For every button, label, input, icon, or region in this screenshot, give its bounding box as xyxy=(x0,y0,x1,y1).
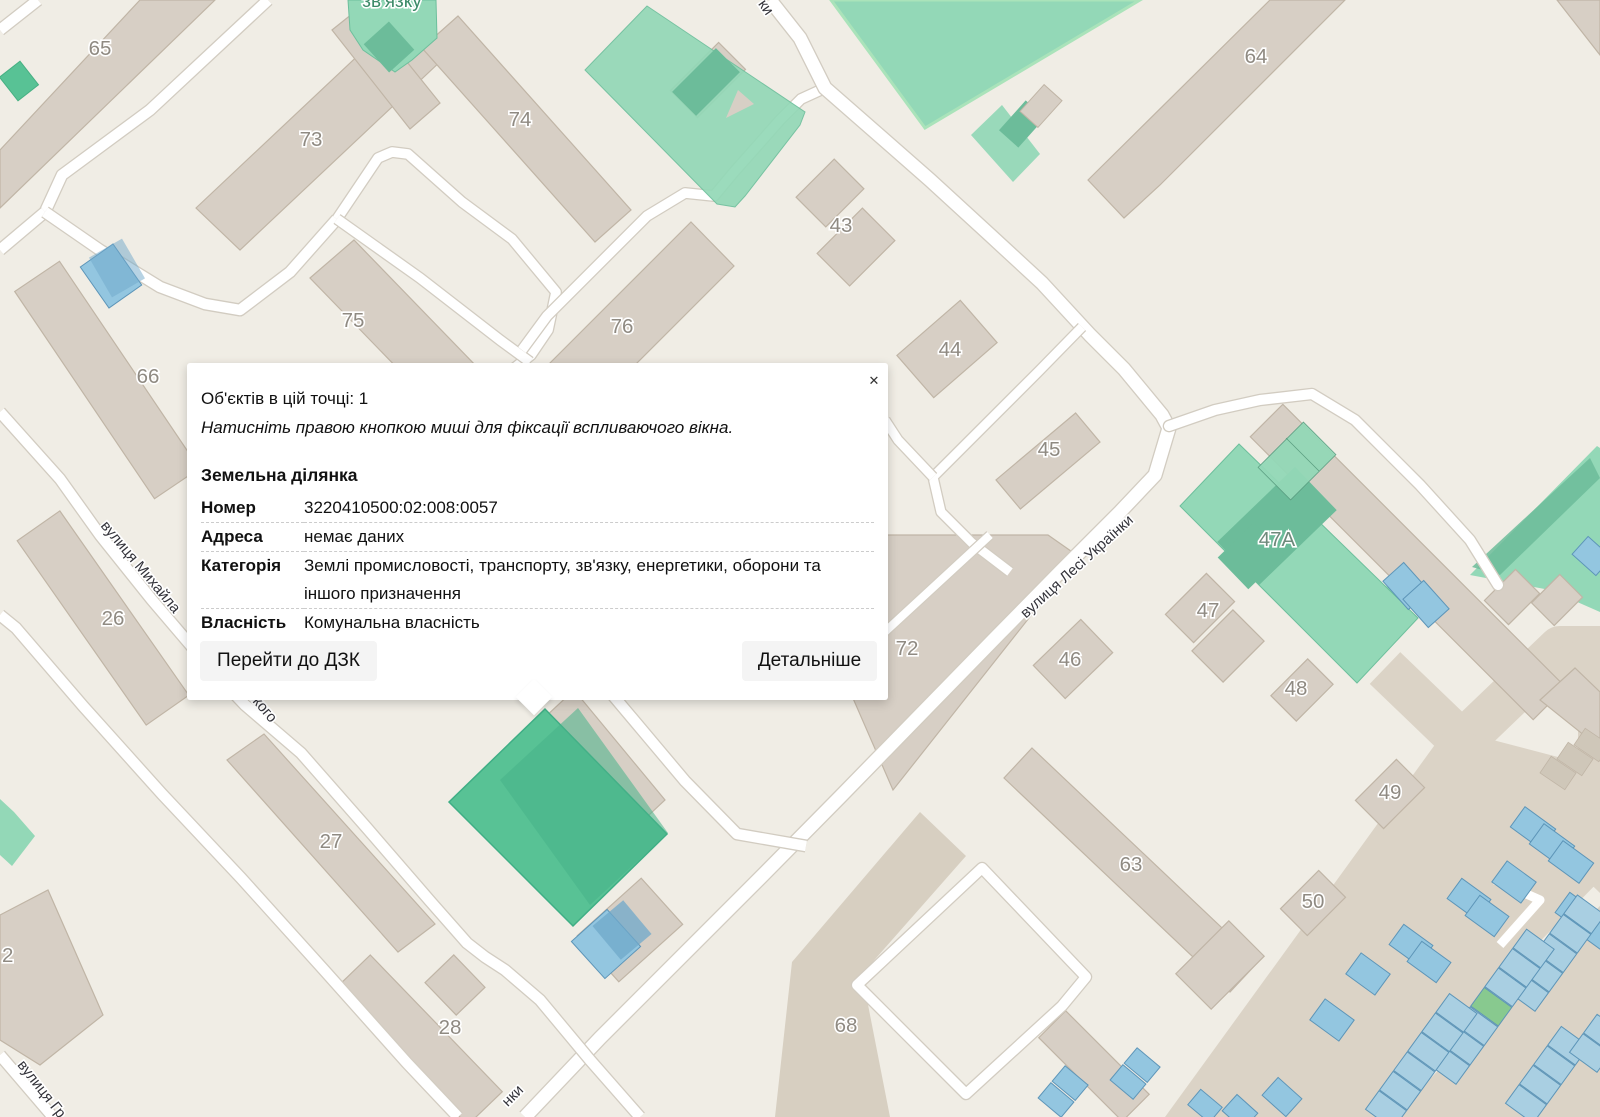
svg-text:75: 75 xyxy=(342,309,365,332)
svg-text:64: 64 xyxy=(1245,45,1268,68)
svg-text:50: 50 xyxy=(1302,890,1325,913)
svg-text:72: 72 xyxy=(896,637,919,660)
svg-text:65: 65 xyxy=(89,37,112,60)
svg-text:2: 2 xyxy=(2,944,13,967)
svg-text:49: 49 xyxy=(1379,781,1402,804)
svg-text:76: 76 xyxy=(611,315,634,338)
svg-text:зв'язку: зв'язку xyxy=(362,0,422,12)
svg-text:63: 63 xyxy=(1120,853,1143,876)
svg-text:68: 68 xyxy=(835,1014,858,1037)
svg-text:45: 45 xyxy=(1038,438,1061,461)
svg-text:27: 27 xyxy=(320,830,343,853)
svg-text:74: 74 xyxy=(509,108,532,131)
svg-text:73: 73 xyxy=(300,128,323,151)
svg-text:46: 46 xyxy=(1059,648,1082,671)
svg-text:47: 47 xyxy=(1197,599,1220,622)
svg-text:48: 48 xyxy=(1285,677,1308,700)
svg-text:44: 44 xyxy=(939,338,962,361)
svg-text:26: 26 xyxy=(102,607,125,630)
svg-text:28: 28 xyxy=(439,1016,462,1039)
svg-text:66: 66 xyxy=(137,365,160,388)
svg-text:43: 43 xyxy=(830,214,853,237)
svg-text:47А: 47А xyxy=(1259,528,1296,551)
